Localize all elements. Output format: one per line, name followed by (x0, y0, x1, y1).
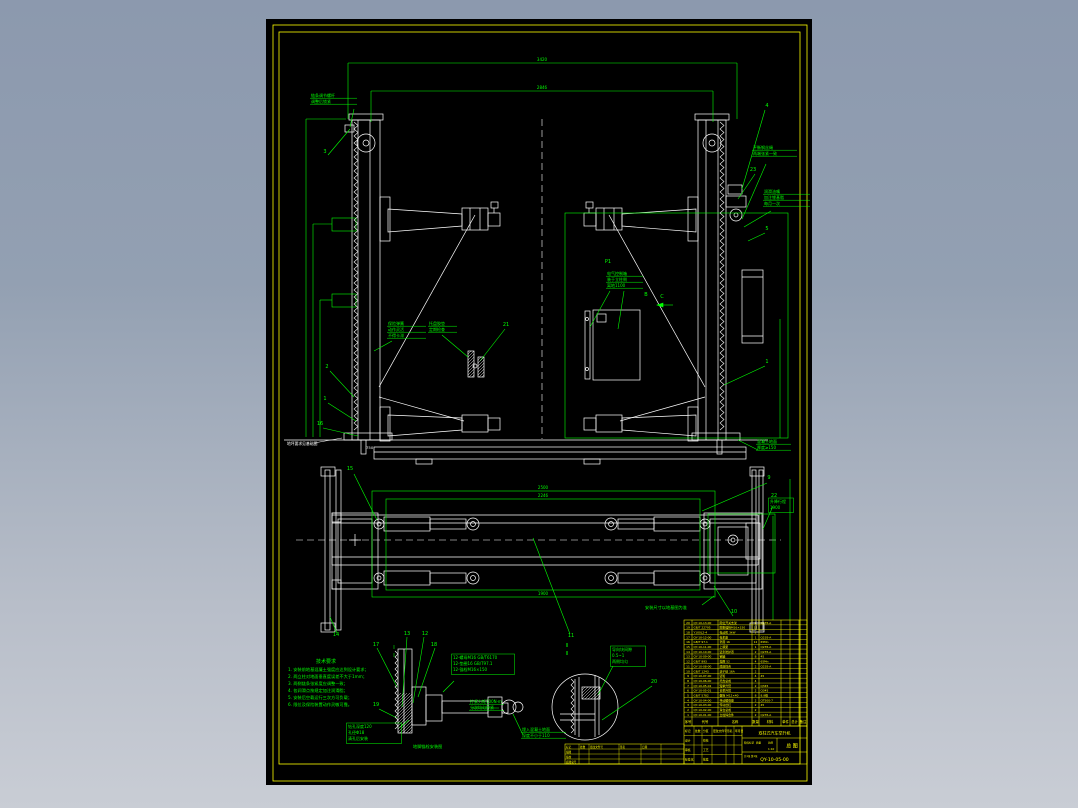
bom-seq: 3 (687, 703, 689, 707)
bom-code: GB/T 1243 (694, 669, 709, 673)
annotation-label-line: 润滑油嘴 (764, 188, 780, 194)
bom-header-cell: 代号 (702, 719, 709, 724)
bom-qty: 2 (755, 684, 757, 688)
callout-5: 5 (765, 226, 768, 232)
bom-seq: 9 (687, 674, 689, 678)
chain-zigzag (395, 651, 398, 729)
title-grid-cell: 分区 (703, 729, 709, 733)
sig-cell: 底图总号 (566, 760, 577, 764)
callout-23: 23 (750, 167, 756, 173)
bom-code: GB/T 22795 (694, 626, 711, 630)
bom-seq: 18 (686, 630, 690, 634)
bom-qty: 8 (755, 694, 757, 698)
bom-material: Q235-A (761, 664, 772, 668)
callout-18: 18 (431, 642, 437, 648)
annotation-label: 电气控制箱装于立柱侧离地1100 (606, 270, 643, 288)
notes-line: 6. 限位及保险装置动作灵敏可靠。 (288, 701, 352, 708)
bom-code: QY-10-04-00 (694, 698, 712, 702)
bom-name: 链条防护罩 (720, 649, 735, 654)
floor-note: 地坪要求见基础图 (287, 441, 318, 446)
bom-row: 7QY-10-05-02短举升臂2Q345 (687, 683, 768, 688)
technical-notes: 技术要求1. 安装前地基混凝土强度应达到设计要求；2. 两立柱对地面垂直度误差不… (288, 658, 369, 708)
bom-qty: 2 (755, 708, 757, 712)
annotation-label-line: 0.5~1 (612, 653, 625, 658)
annotation-label: 混凝土地面厚度≥150 (756, 438, 791, 450)
callout-13: 13 (404, 631, 410, 637)
chain-zigzag (354, 122, 358, 430)
bom-code: GB/T 893 (694, 660, 708, 664)
bom-material: Q345 (761, 689, 769, 693)
title-drawing-number: QY-10-05-00 (760, 757, 788, 763)
bom-seq: 19 (686, 626, 690, 630)
annotation-label-line: 定期检查 (429, 326, 445, 332)
bom-material: Q235-A (761, 650, 772, 654)
bom-qty: 2 (755, 703, 757, 707)
bom-code: QY-10-13-00 (694, 621, 712, 625)
chain-zigzag (720, 122, 724, 430)
annotation-label-line: 离地1100 (607, 282, 626, 288)
title-grid-cell: 签名 (727, 729, 733, 733)
hatch-pattern (442, 351, 498, 377)
white-leaders (314, 438, 342, 443)
annotation-label-line: 电气控制箱 (607, 270, 627, 276)
annotation-label-line: 升降行程 (770, 498, 786, 504)
bom-code: QY-10-06-00 (694, 679, 712, 683)
bom-header-cell: 单件 (782, 719, 789, 724)
annotation-label-line: 不得卡滞 (388, 332, 404, 338)
bom-row: 15QY-10-11-00上横梁1Q235-A (686, 644, 771, 649)
callout-B: B (644, 292, 648, 298)
bom-material: 8.8级 (761, 693, 769, 698)
annotation-label-line: 钻孔深度120 (348, 723, 372, 729)
bom-seq: 20 (686, 621, 690, 625)
bom-code: QY-10-05-01 (694, 689, 712, 693)
bom-name: 短举升臂 (720, 683, 732, 688)
bom-seq: 8 (687, 679, 689, 683)
bom-row: 1QY-10-01-00立柱焊合件2Q235-A (687, 712, 771, 717)
bom-header-cell: 数量 (752, 719, 759, 724)
bom-qty: 8 (755, 655, 757, 659)
callout-14: 14 (333, 632, 339, 638)
bom-material: Q235-A (761, 645, 772, 649)
annotation-label: 导向块间隙0.5~1两侧均匀 (611, 646, 646, 667)
bom-name: 螺栓 M12×40 (720, 693, 739, 698)
bom-row: 18Y100L2-4电动机 3kW2 (686, 629, 756, 634)
notes-line: 2. 两立柱对地面垂直度误差不大于1mm； (288, 673, 367, 680)
annotation-label: 拧紧力矩100N·m分次均匀拧紧 (469, 698, 504, 710)
bom-code: QY-10-10-00 (694, 650, 712, 654)
annotation-label-line: 两侧均匀 (612, 658, 628, 664)
title-block: 标记处数分区更改文件号签名年月日设计校核审核工艺标准化批准双柱式汽车举升机阶段标… (684, 726, 807, 764)
bom-qty: 4 (755, 674, 757, 678)
bom-name: 电动机 3kW (720, 629, 736, 634)
annotation-label-line: 导向块间隙 (612, 646, 632, 652)
bom-table: 序号代号名称数量材料单件总计备注20QY-10-13-00限位开关支架2Q235… (684, 620, 807, 726)
bom-row: 4QY-10-04-00传动螺母座2QT500-7 (687, 697, 773, 702)
hatch-pattern (570, 687, 609, 699)
bom-row: 3QY-10-03-00传动丝杠245 (687, 702, 764, 707)
bom-name: 电机座 (720, 634, 729, 639)
bom-name: 膨胀锚栓M16×150 (720, 625, 746, 630)
bom-row: 9QY-10-07-00链轮445 (687, 673, 764, 678)
bom-seq: 2 (687, 708, 689, 712)
anchor-caption: 地脚锚栓安装图 (413, 743, 442, 750)
bom-row: 2QY-10-02-00滑台总成2 (687, 707, 757, 712)
bom-name: 托盘总成 (720, 678, 732, 683)
annotation-label-line: 厚度≥150 (757, 444, 776, 450)
annotation-label-line: 动作灵活 (388, 326, 404, 332)
callout-10: 10 (731, 609, 737, 615)
annotation-label-line: 12-螺母M16 GB/T6170 (453, 654, 498, 660)
title-grid-cell: 标准化 (685, 758, 694, 762)
annotation-label-line: 埋入混凝土地面 (522, 726, 550, 732)
bom-material: 65Mn (761, 660, 769, 664)
annotation-label: 12-螺母M16 GB/T617012-垫圈16 GB/T97.112-锚栓M1… (452, 654, 515, 675)
bom-qty: 1 (755, 635, 757, 639)
bom-header-cell: 材料 (767, 719, 774, 724)
callout-21: 21 (503, 322, 509, 328)
bom-name: 传动螺母座 (720, 697, 735, 702)
dimension-value: 2246 (538, 493, 549, 498)
bom-row: 11QY-10-08-00底座焊合2Q235-A (686, 663, 771, 668)
annotation-label-line: 调整后锁紧 (311, 98, 331, 104)
sig-cell: 标记 (566, 745, 572, 749)
title-scale: 1:10 (768, 747, 775, 751)
plan-note: 安装尺寸以地基图为准 (645, 604, 687, 611)
annotation-label: 保险弹簧动作灵活不得卡滞 (387, 320, 426, 338)
bom-qty: 4 (755, 660, 757, 664)
bom-row: 5GB/T 5782螺栓 M12×4088.8级 (687, 693, 768, 698)
drawing-canvas: 34202846250022461900 3423512121161592210… (266, 19, 812, 785)
bom-row: 12GB/T 893挡圈 52465Mn (686, 659, 769, 664)
title-grid-cell: 设计 (685, 739, 691, 743)
bom-row: 6QY-10-05-01长举升臂2Q345 (687, 688, 768, 693)
bom-code: GB/T 97.1 (694, 640, 708, 644)
callout-I: I (393, 645, 394, 651)
bom-header-cell: 备注 (800, 719, 807, 724)
bom-code: QY-10-11-00 (694, 645, 712, 649)
bom-name: 上横梁 (720, 644, 729, 649)
title-grid-cell: 批准 (703, 758, 709, 762)
bom-code: QY-10-03-00 (694, 703, 712, 707)
notes-line: 4. 各润滑点按规定加注润滑脂； (288, 687, 348, 694)
bom-header-cell: 总计 (791, 719, 798, 724)
notes-heading: 技术要求 (316, 658, 336, 665)
annotation-label-line: 托盘胶垫 (429, 320, 445, 326)
sig-cell: 描图 (566, 750, 572, 754)
annotation-label-line: 拧紧力矩100N·m (470, 698, 502, 704)
bom-name: 立柱焊合件 (720, 712, 735, 717)
annotation-label-line: 混凝土地面 (757, 438, 777, 444)
title-grid-cell: 更改文件号 (713, 729, 727, 733)
annotation-label: 平衡钢丝绳两端张紧一致 (752, 144, 797, 156)
title-product-name: 双柱式汽车举升机 (759, 730, 791, 736)
annotation-label-line: 12-锚栓M16×150 (453, 666, 488, 672)
callout-layer: 34235121211615922101112131417181920BCP1I… (317, 103, 777, 708)
bom-seq: 16 (686, 640, 690, 644)
notes-line: 5. 安装后空载运行三次方可负载； (288, 694, 352, 701)
bom-row: 14QY-10-10-00链条防护罩2Q235-A (686, 649, 771, 654)
bom-name: 垫圈 16 (720, 639, 731, 644)
callout-1: 1 (323, 396, 326, 402)
bom-name: 链轮 (720, 673, 726, 678)
chain-zigzag (571, 679, 574, 733)
callout-II: II (566, 651, 569, 657)
title-drawing-type: 总 图 (786, 743, 798, 750)
callout-17: 17 (373, 642, 379, 648)
bom-qty: 2 (755, 689, 757, 693)
callout-11: 11 (568, 633, 574, 639)
bom-code: Y100L2-4 (694, 630, 708, 634)
annotation-label-line: 分次均匀拧紧 (470, 704, 494, 710)
bom-material: 45 (761, 674, 765, 678)
bom-seq: 17 (686, 635, 690, 639)
callout-4: 4 (765, 103, 768, 109)
bom-seq: 7 (687, 684, 689, 688)
annotation-label-line: 1900 (770, 505, 781, 510)
callout-20: 20 (651, 679, 657, 685)
bom-seq: 6 (687, 689, 689, 693)
bom-name: 传动丝杠 (720, 702, 732, 707)
title-stage-label: 阶段标记 (744, 741, 755, 745)
bom-qty: 2 (755, 698, 757, 702)
bom-qty: 1 (755, 645, 757, 649)
bom-seq: 15 (686, 645, 690, 649)
title-stage-label: 比例 (768, 741, 774, 745)
bom-seq: 4 (687, 698, 689, 702)
sig-cell: 签名 (620, 745, 626, 749)
annotation-label-line: 两端张紧一致 (753, 150, 777, 156)
callout-1: 1 (765, 359, 768, 365)
bom-code: QY-10-08-00 (694, 664, 712, 668)
bom-name: 滑台总成 (720, 707, 732, 712)
bom-seq: 13 (686, 655, 690, 659)
bom-seq: 14 (686, 650, 690, 654)
callout-12: 12 (422, 631, 428, 637)
bom-qty: 12 (754, 626, 758, 630)
bom-qty: 4 (755, 679, 757, 683)
hatch-pattern (358, 693, 449, 733)
bom-name: 滚子链 16A (720, 668, 735, 673)
annotation-label-line: 孔径Φ18 (348, 729, 365, 735)
floor-dim: 750 (366, 445, 374, 450)
bom-row: 17QY-10-12-00电机座1Q235-A (686, 634, 771, 639)
sig-cell: 描校 (566, 755, 572, 759)
callout-9: 9 (767, 475, 770, 481)
bom-qty: 2 (755, 650, 757, 654)
annotation-label: 润滑油嘴加注锂基脂每月一次 (763, 188, 810, 206)
bom-qty: 2 (755, 713, 757, 717)
dimension-value: 2846 (537, 85, 548, 90)
bom-code: QY-10-01-00 (694, 713, 712, 717)
viewer-background: 34202846250022461900 3423512121161592210… (0, 0, 1078, 808)
sig-cell: 处数 (580, 745, 586, 749)
bom-code: QY-10-07-00 (694, 674, 712, 678)
bom-code: QY-10-12-00 (694, 635, 712, 639)
dimension-value: 3420 (537, 57, 548, 62)
bom-qty: 2 (755, 669, 757, 673)
cad-sheet: 34202846250022461900 3423512121161592210… (266, 19, 812, 785)
annotation-label-line: 保险弹簧 (388, 320, 404, 326)
annotation-label-line: 清孔后安装 (348, 735, 368, 741)
bom-row: 8QY-10-06-00托盘总成4 (687, 678, 757, 683)
bom-material: Q235-A (761, 621, 772, 625)
bom-seq: 5 (687, 694, 689, 698)
callout-I: I (393, 653, 394, 659)
bom-name: 限位开关支架 (720, 620, 737, 625)
bom-row: 16GB/T 97.1垫圈 161265Mn (686, 639, 769, 644)
title-grid-cell: 标记 (685, 729, 691, 733)
bom-material: Q235-A (761, 635, 772, 639)
bom-code: QY-10-02-00 (694, 708, 712, 712)
bom-qty: 2 (755, 630, 757, 634)
bom-material: 45 (761, 655, 765, 659)
bom-name: 挡圈 52 (720, 659, 731, 664)
bom-code: QY-10-09-00 (694, 655, 712, 659)
bom-header-cell: 名称 (732, 719, 739, 724)
green-annotation-lines (306, 63, 790, 735)
annotation-label: 钻孔深度120孔径Φ18清孔后安装 (347, 723, 402, 744)
bom-row: 19GB/T 22795膨胀锚栓M16×15012 (686, 625, 757, 630)
bom-code: GB/T 5782 (694, 694, 709, 698)
bom-material: Q235-A (761, 713, 772, 717)
bom-row: 20QY-10-13-00限位开关支架2Q235-A (686, 620, 771, 625)
title-stage-label: 质量 (756, 741, 762, 745)
callout-C: C (660, 294, 664, 300)
annotation-label-line: 12-垫圈16 GB/T97.1 (453, 660, 493, 666)
bom-name: 底座焊合 (720, 663, 732, 668)
annotation-label: 链条调节螺杆调整后锁紧 (310, 92, 357, 104)
annotation-label-line: 链条调节螺杆 (311, 92, 335, 98)
annotation-label: 托盘胶垫定期检查 (428, 320, 457, 332)
bom-qty: 12 (754, 640, 758, 644)
title-sheet-info: 共1张 第1张 (744, 754, 758, 758)
callout-P1: P1 (605, 259, 611, 265)
bom-material: QT500-7 (761, 698, 774, 702)
callout-15: 15 (347, 466, 353, 472)
sig-cell: 日期 (642, 745, 648, 749)
bom-header-cell: 序号 (685, 719, 692, 724)
notes-line: 3. 两侧链条张紧度应调整一致； (288, 680, 348, 687)
bom-name: 长举升臂 (720, 688, 732, 693)
callout-16: 16 (317, 421, 323, 427)
callout-2: 2 (325, 364, 328, 370)
annotation-label-layer: 链条调节螺杆调整后锁紧平衡钢丝绳两端张紧一致润滑油嘴加注锂基脂每月一次保险弹簧动… (310, 92, 810, 744)
bom-row: 10GB/T 1243滚子链 16A2 (686, 668, 756, 673)
bom-seq: 11 (686, 664, 690, 668)
notes-line: 1. 安装前地基混凝土强度应达到设计要求； (288, 666, 369, 673)
bom-name: 销轴 (720, 654, 726, 659)
annotation-label-line: 每月一次 (764, 200, 780, 206)
bom-material: 45 (761, 703, 765, 707)
annotation-label-line: 深度不小于110 (522, 732, 550, 738)
bom-seq: 12 (686, 660, 690, 664)
title-grid-cell: 工艺 (703, 748, 709, 752)
bom-seq: 1 (687, 713, 689, 717)
title-grid-cell: 年月日 (735, 729, 744, 733)
dimension-value: 1900 (538, 591, 549, 596)
bom-material: 65Mn (761, 640, 769, 644)
dimension-value: 2500 (538, 485, 549, 490)
callout-3: 3 (323, 149, 326, 155)
title-grid-cell: 校核 (703, 739, 709, 743)
bom-qty: 2 (755, 621, 757, 625)
callout-19: 19 (373, 702, 379, 708)
bom-material: Q345 (761, 684, 769, 688)
bom-code: QY-10-05-02 (694, 684, 712, 688)
hatch-pattern (458, 357, 502, 377)
chain-layer (354, 122, 724, 733)
signature-strip: 标记处数更改文件号签名日期描图描校底图总号 (565, 744, 684, 764)
title-grid-cell: 处数 (695, 729, 701, 733)
annotation-label-line: 装于立柱侧 (607, 276, 627, 282)
bom-qty: 2 (755, 664, 757, 668)
annotation-label-line: 加注锂基脂 (764, 194, 784, 200)
title-grid-cell: 审核 (685, 748, 691, 752)
callout-II: II (566, 643, 569, 649)
centerlines (296, 119, 781, 540)
bom-row: 13QY-10-09-00销轴845 (686, 654, 764, 659)
bom-seq: 10 (686, 669, 690, 673)
annotation-label-line: 平衡钢丝绳 (753, 144, 773, 150)
sig-cell: 更改文件号 (590, 745, 603, 749)
